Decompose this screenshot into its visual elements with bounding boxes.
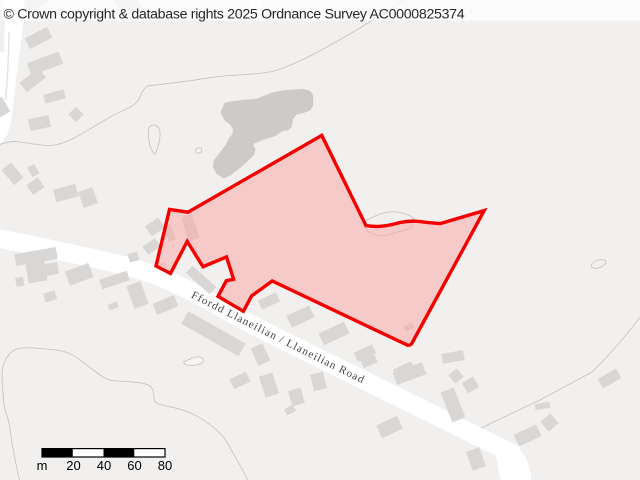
svg-text:40: 40 [97,458,111,473]
svg-text:60: 60 [127,458,141,473]
svg-text:80: 80 [158,458,172,473]
svg-text:m: m [37,458,48,473]
svg-text:20: 20 [66,458,80,473]
svg-text:© Crown copyright & database r: © Crown copyright & database rights 2025… [4,6,465,22]
